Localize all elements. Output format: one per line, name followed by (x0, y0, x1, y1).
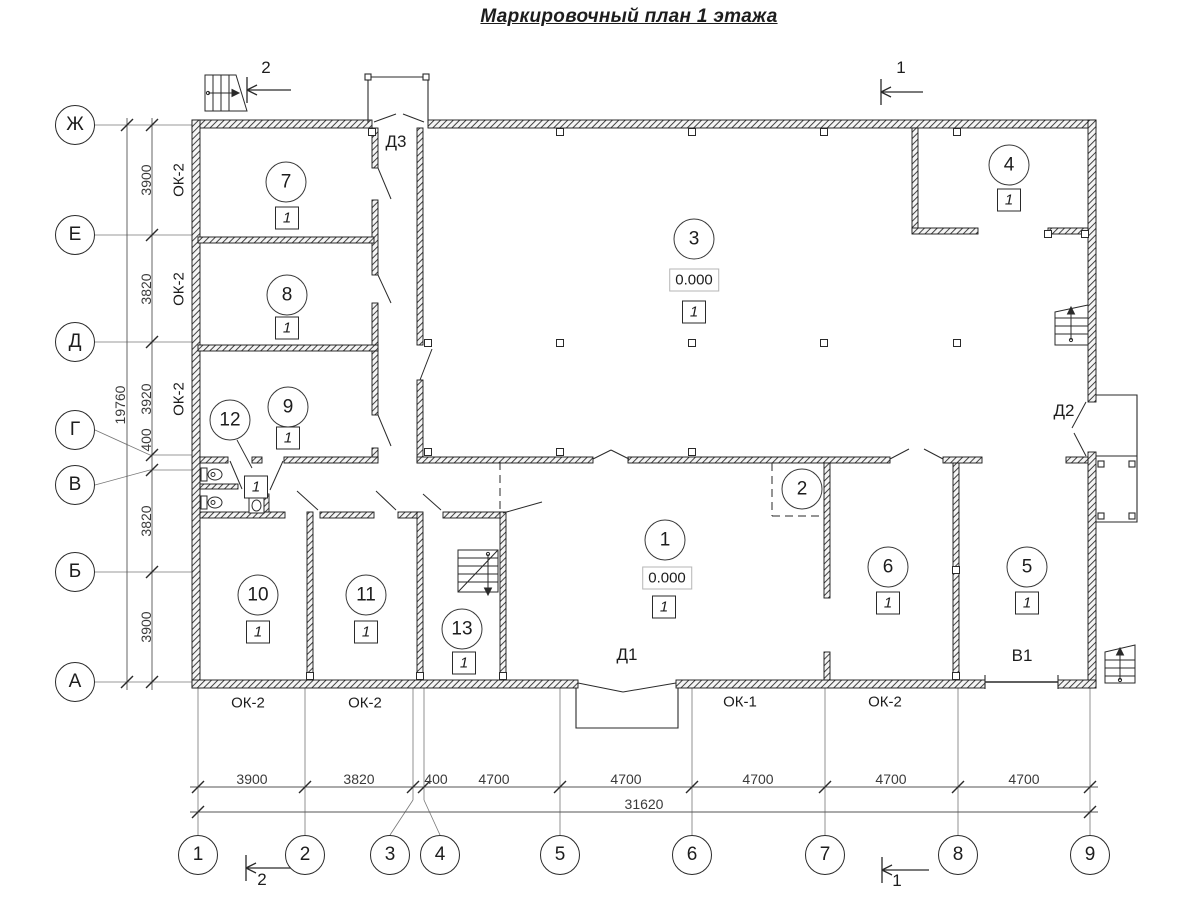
stairs-right-wall-icon (1055, 305, 1088, 345)
section-mark-2-top: 2 (261, 58, 270, 78)
finish-badge-room12: 1 (244, 476, 268, 499)
axis-row-b: Б (55, 552, 95, 592)
elevation-mark-room3: 0.000 (669, 269, 719, 292)
axis-col-4: 4 (420, 835, 460, 875)
finish-badge-room11: 1 (354, 621, 378, 644)
dimension-lines (127, 118, 1098, 812)
sink-icon (249, 498, 264, 513)
finish-badge-room5: 1 (1015, 592, 1039, 615)
finish-badge-room9: 1 (276, 427, 300, 450)
room-bubble-2: 2 (782, 469, 823, 510)
room-bubble-8: 8 (267, 275, 308, 316)
axis-col-8: 8 (938, 835, 978, 875)
axis-col-2: 2 (285, 835, 325, 875)
axis-row-v: В (55, 465, 95, 505)
finish-badge-room6: 1 (876, 592, 900, 615)
axis-col-9: 9 (1070, 835, 1110, 875)
window-mark-bottom-1: ОК-2 (231, 695, 265, 712)
door-mark-d3: Д3 (386, 132, 407, 152)
finish-badge-room1: 1 (652, 596, 676, 619)
finish-badge-room7: 1 (275, 207, 299, 230)
window-mark-bottom-4: ОК-2 (868, 694, 902, 711)
window-mark-left-2: ОК-2 (171, 272, 188, 306)
axis-col-1: 1 (178, 835, 218, 875)
finish-badge-room4: 1 (997, 189, 1021, 212)
dim-bottom-7: 4700 (875, 771, 906, 787)
axis-col-5: 5 (540, 835, 580, 875)
dim-left-total: 19760 (112, 386, 128, 425)
window-mark-bottom-2: ОК-2 (348, 695, 382, 712)
section-mark-1-top: 1 (896, 58, 905, 78)
dim-bottom-3: 400 (424, 771, 447, 787)
axis-col-3: 3 (370, 835, 410, 875)
door-mark-d1: Д1 (617, 645, 638, 665)
room-bubble-12: 12 (210, 400, 251, 441)
leader-lines (237, 440, 252, 468)
room-bubble-10: 10 (238, 575, 279, 616)
dim-bottom-5: 4700 (610, 771, 641, 787)
toilet-icon (201, 468, 222, 481)
finish-badge-room8: 1 (275, 317, 299, 340)
room-bubble-7: 7 (266, 162, 307, 203)
room-bubble-3: 3 (674, 219, 715, 260)
column-marks (307, 129, 1089, 680)
dim-bottom-1: 3900 (236, 771, 267, 787)
finish-badge-room10: 1 (246, 621, 270, 644)
axis-row-g: Г (55, 410, 95, 450)
room-bubble-5: 5 (1007, 547, 1048, 588)
dim-bottom-total: 31620 (625, 796, 664, 812)
room-bubble-11: 11 (346, 575, 387, 616)
dim-bottom-8: 4700 (1008, 771, 1039, 787)
dim-bottom-4: 4700 (478, 771, 509, 787)
exterior-stairs-bottom-right-icon (1105, 645, 1135, 683)
axis-row-d: Д (55, 322, 95, 362)
toilet-icon (201, 496, 222, 509)
window-mark-left-1: ОК-2 (171, 163, 188, 197)
finish-badge-room13: 1 (452, 652, 476, 675)
dim-left-4: 400 (138, 428, 154, 451)
floor-plan-sheet: Маркировочный план 1 этажа Ж Е Д Г В Б А… (0, 0, 1200, 900)
floor-plan-linework (0, 0, 1200, 900)
dim-left-5: 3820 (138, 505, 154, 536)
axis-col-6: 6 (672, 835, 712, 875)
exterior-stairs-top-left-icon (205, 75, 247, 111)
axis-row-zh: Ж (55, 105, 95, 145)
gate-mark-v1: В1 (1012, 646, 1033, 666)
axis-row-e: Е (55, 215, 95, 255)
dim-left-6: 3900 (138, 611, 154, 642)
dim-left-1: 3900 (138, 164, 154, 195)
room-bubble-9: 9 (268, 387, 309, 428)
section-mark-2-bottom: 2 (257, 870, 266, 890)
section-mark-1-bottom: 1 (892, 871, 901, 891)
door-mark-d2: Д2 (1054, 401, 1075, 421)
dim-left-2: 3820 (138, 273, 154, 304)
walls (192, 120, 1096, 688)
dimension-ticks (121, 119, 1096, 818)
elevation-mark-room1: 0.000 (642, 567, 692, 590)
window-mark-left-3: ОК-2 (171, 382, 188, 416)
room-bubble-13: 13 (442, 609, 483, 650)
room-bubble-6: 6 (868, 547, 909, 588)
axis-col-7: 7 (805, 835, 845, 875)
axis-row-a: А (55, 662, 95, 702)
dim-bottom-6: 4700 (742, 771, 773, 787)
window-mark-bottom-3: ОК-1 (723, 694, 757, 711)
dim-bottom-2: 3820 (343, 771, 374, 787)
dashed-partitions (500, 462, 824, 516)
stairs-room13-icon (458, 550, 498, 595)
room-bubble-1: 1 (645, 520, 686, 561)
finish-badge-room3: 1 (682, 301, 706, 324)
dim-left-3: 3920 (138, 383, 154, 414)
sheet-title: Маркировочный план 1 этажа (480, 6, 777, 28)
room-bubble-4: 4 (989, 145, 1030, 186)
